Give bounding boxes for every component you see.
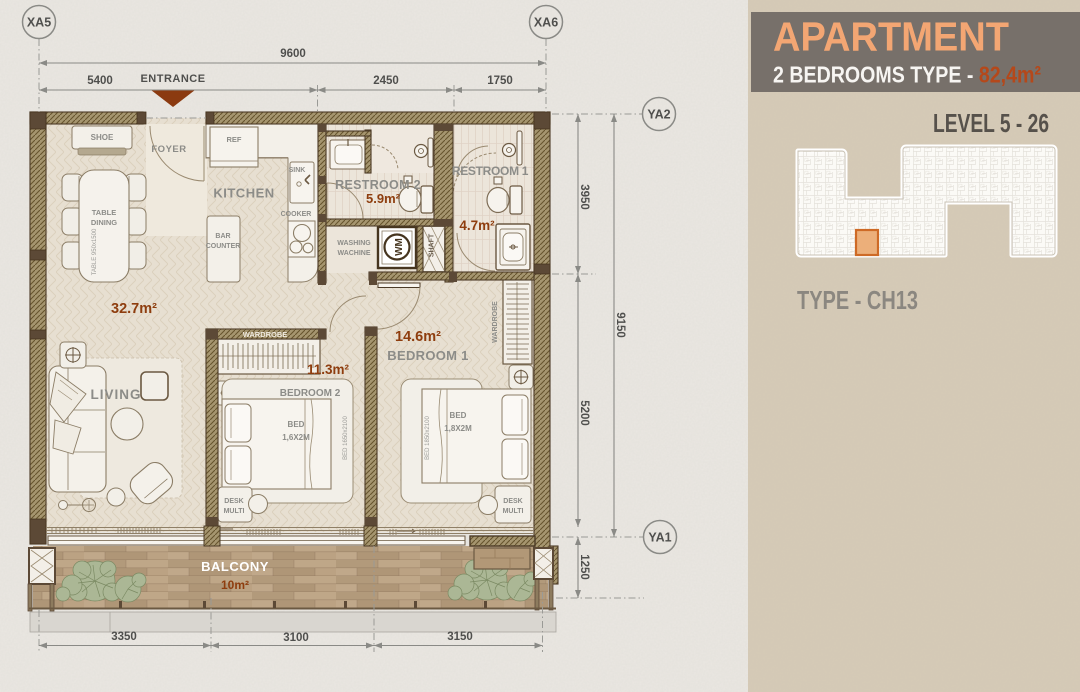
svg-text:14.6m²: 14.6m² (395, 329, 441, 345)
svg-text:2450: 2450 (373, 75, 399, 87)
svg-text:5200: 5200 (578, 400, 590, 426)
svg-text:BED 1850x2100: BED 1850x2100 (425, 415, 431, 459)
svg-text:XA6: XA6 (534, 16, 558, 30)
svg-text:BEDROOM 1: BEDROOM 1 (387, 348, 468, 363)
svg-text:RESTROOM 2: RESTROOM 2 (335, 178, 421, 192)
svg-text:3350: 3350 (111, 631, 137, 643)
svg-text:1750: 1750 (487, 75, 513, 87)
svg-text:9150: 9150 (614, 312, 626, 338)
svg-text:TABLE: TABLE (92, 208, 116, 217)
svg-text:BED: BED (450, 411, 467, 420)
svg-text:BED 1650x2100: BED 1650x2100 (343, 415, 349, 459)
svg-text:BAR: BAR (215, 233, 230, 240)
svg-text:TYPE - CH13: TYPE - CH13 (797, 285, 918, 315)
svg-text:RESTROOM 1: RESTROOM 1 (452, 164, 529, 178)
svg-text:XA5: XA5 (27, 16, 51, 30)
svg-text:11.3m²: 11.3m² (307, 362, 350, 377)
svg-text:3100: 3100 (283, 632, 309, 644)
svg-text:5400: 5400 (87, 75, 113, 87)
svg-text:3150: 3150 (447, 631, 473, 643)
svg-text:SINK: SINK (289, 167, 306, 174)
svg-text:1,8X2M: 1,8X2M (444, 424, 472, 433)
svg-text:DESK: DESK (503, 498, 522, 505)
svg-text:9600: 9600 (280, 48, 306, 60)
svg-text:COOKER: COOKER (281, 211, 312, 218)
svg-text:COUNTER: COUNTER (206, 243, 241, 250)
svg-text:WM: WM (394, 238, 405, 256)
svg-text:WARDROBE: WARDROBE (243, 330, 288, 339)
svg-text:KITCHEN: KITCHEN (213, 186, 274, 201)
svg-text:LEVEL 5 - 26: LEVEL 5 - 26 (933, 108, 1049, 138)
svg-text:DESK: DESK (224, 498, 243, 505)
svg-text:SHAFT: SHAFT (429, 233, 436, 257)
svg-text:2 BEDROOMS TYPE - 82,4m²: 2 BEDROOMS TYPE - 82,4m² (773, 62, 1041, 88)
svg-text:YA1: YA1 (648, 531, 671, 545)
svg-text:WARDROBE: WARDROBE (492, 301, 499, 343)
svg-text:DINING: DINING (91, 218, 117, 227)
svg-text:SHOE: SHOE (91, 133, 114, 142)
svg-text:WACHINE: WACHINE (337, 250, 370, 257)
svg-text:5.9m²: 5.9m² (366, 191, 401, 206)
svg-text:BALCONY: BALCONY (201, 559, 269, 574)
svg-text:3950: 3950 (578, 184, 590, 210)
svg-text:BED: BED (288, 420, 305, 429)
svg-text:WASHING: WASHING (337, 240, 371, 247)
svg-text:YA2: YA2 (647, 108, 670, 122)
svg-text:BEDROOM 2: BEDROOM 2 (280, 388, 341, 399)
svg-text:4.7m²: 4.7m² (459, 218, 495, 233)
svg-text:FOYER: FOYER (151, 144, 186, 155)
svg-text:ENTRANCE: ENTRANCE (140, 73, 205, 85)
svg-text:LIVING: LIVING (90, 387, 141, 402)
svg-text:1250: 1250 (578, 554, 590, 580)
svg-text:MULTI: MULTI (224, 508, 245, 515)
svg-text:TABLE 950x1500: TABLE 950x1500 (92, 228, 98, 275)
svg-text:32.7m²: 32.7m² (111, 301, 157, 317)
svg-text:REF: REF (227, 135, 242, 144)
svg-text:1,6X2M: 1,6X2M (282, 433, 310, 442)
svg-text:APARTMENT: APARTMENT (773, 14, 1009, 60)
svg-text:10m²: 10m² (221, 578, 249, 592)
svg-text:MULTI: MULTI (503, 508, 524, 515)
